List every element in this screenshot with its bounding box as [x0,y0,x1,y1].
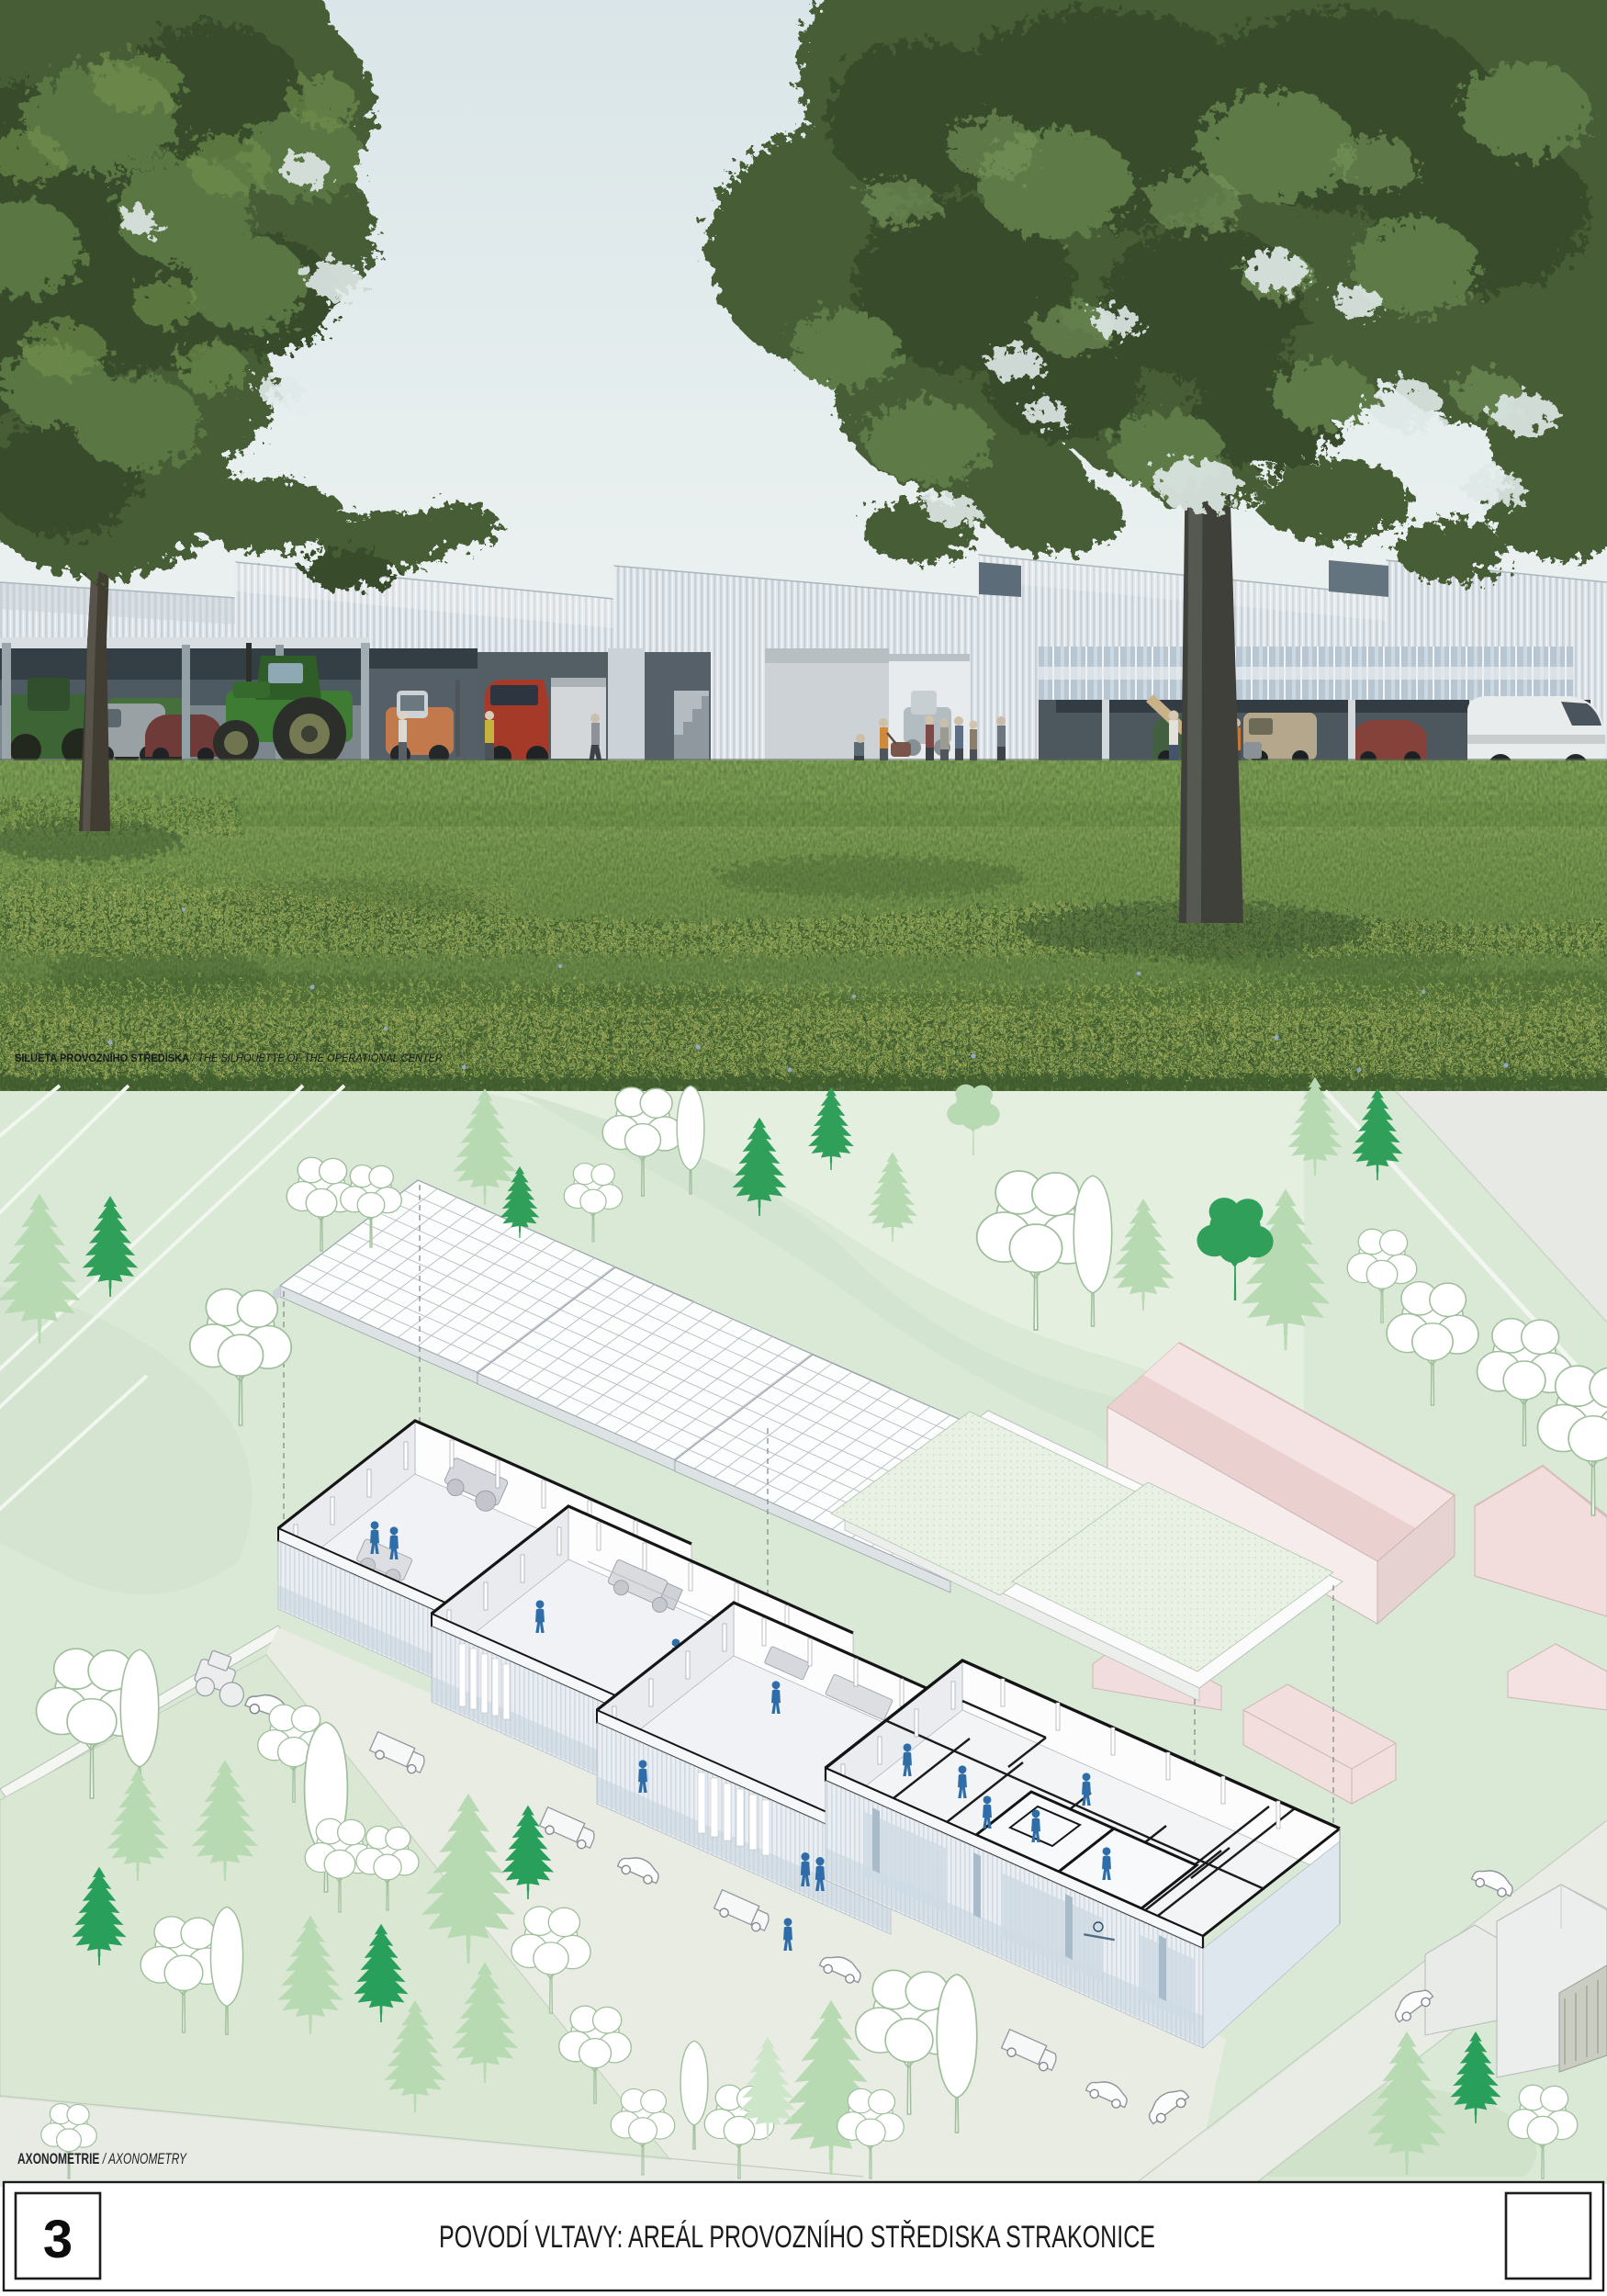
svg-text:AXONOMETRIE / AXONOMETRY: AXONOMETRIE / AXONOMETRY [17,2150,187,2167]
svg-text:3: 3 [43,2210,73,2269]
svg-text:POVODÍ VLTAVY: AREÁL PROVOZNÍH: POVODÍ VLTAVY: AREÁL PROVOZNÍHO STŘEDISK… [439,2220,1155,2255]
svg-text:SILUETA PROVOZNÍHO STŘEDISKA /: SILUETA PROVOZNÍHO STŘEDISKA / THE SILHO… [15,1051,443,1064]
